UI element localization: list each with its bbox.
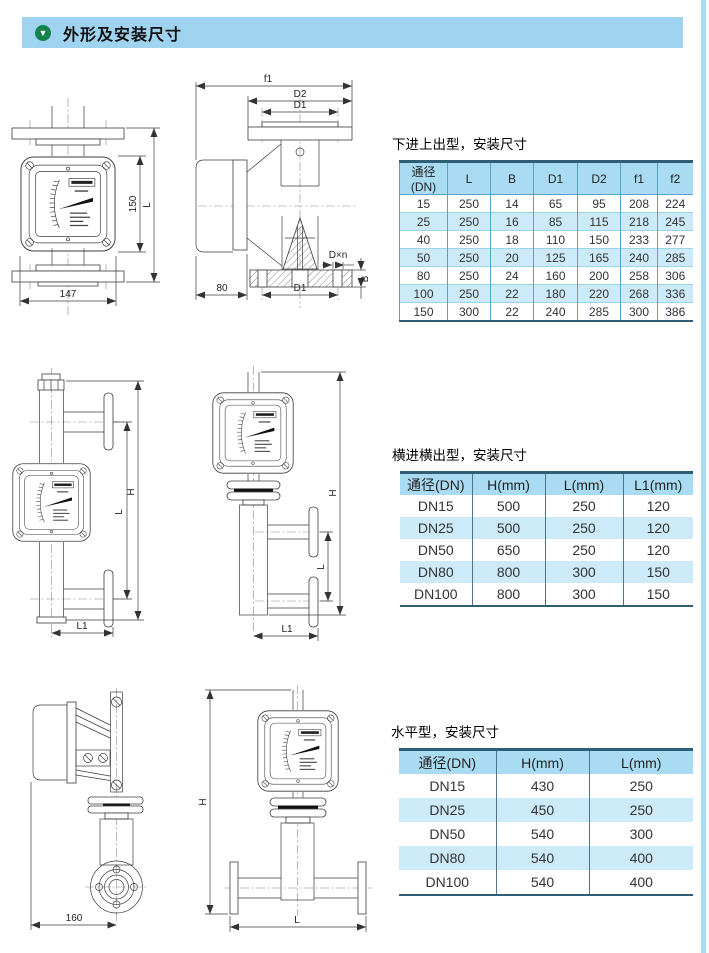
table-row: DN80800300150 [400,561,693,583]
table-cell: 540 [496,870,589,895]
table-header-row: 通径(DN)H(mm)L(mm) [399,750,693,775]
table-cell: 250 [448,231,491,249]
table-cell: 150 [578,231,621,249]
table-cell: 110 [534,231,578,249]
dim-label-150: 150 [128,195,139,212]
table-cell: 250 [448,249,491,267]
table-header-row: 通径(DN)LBD1D2f1f2 [400,162,693,195]
table-cell: 120 [623,539,693,561]
table-cell: 100 [400,285,448,303]
column-header: f1 [621,162,658,195]
table-cell: 300 [545,561,623,583]
table-row: DN25500250120 [400,517,693,539]
table-cell: 115 [578,213,621,231]
table-cell: 120 [623,517,693,539]
table-cell: 268 [621,285,658,303]
dim-label-L-left: L [114,509,125,515]
table-cell: DN80 [400,561,472,583]
section-header-bar: ▼ 外形及安装尺寸 [22,17,683,48]
column-header: D2 [578,162,621,195]
table-cell: 50 [400,249,448,267]
column-header: 通径(DN) [400,162,448,195]
table-bottom-in-top-out: 通径(DN)LBD1D2f1f2152501465952082242525016… [399,160,693,322]
table-row: 15030022240285300386 [400,303,693,322]
table-cell: 95 [578,195,621,213]
page-title: 外形及安装尺寸 [63,21,182,45]
column-header: f2 [658,162,693,195]
table-cell: 450 [496,798,589,822]
front-view: 150 L 147 [12,98,160,315]
page-edge-strip [701,0,706,953]
horizontal-type-right-view: H L L1 [213,366,346,641]
column-header: 通径(DN) [399,750,496,775]
table-cell: DN50 [399,822,496,846]
table-row: DN50540300 [399,822,693,846]
table-row: DN15430250 [399,774,693,798]
table1-title: 下进上出型，安装尺寸 [392,133,693,153]
column-header: L(mm) [545,473,623,496]
table-row: DN25450250 [399,798,693,822]
table-cell: 258 [621,267,658,285]
table-block-level-type: 水平型，安装尺寸 通径(DN)H(mm)L(mm)DN15430250DN254… [391,721,693,896]
table-cell: 245 [658,213,693,231]
table-cell: 150 [623,561,693,583]
dim-label-D1-top: D1 [294,100,307,111]
dim-label-160: 160 [66,913,83,924]
column-header: 通径(DN) [400,473,472,496]
table-cell: 540 [496,822,589,846]
table-cell: 300 [545,583,623,606]
table-cell: 250 [589,798,693,822]
table-cell: 80 [400,267,448,285]
table-cell: 160 [534,267,578,285]
table-cell: 208 [621,195,658,213]
table-cell: 200 [578,267,621,285]
table-cell: DN15 [400,495,472,517]
table-row: 5025020125165240285 [400,249,693,267]
table-row: DN15500250120 [400,495,693,517]
dim-label-B: B [360,275,371,282]
table-cell: 650 [472,539,545,561]
table-cell: DN25 [399,798,496,822]
dim-label-D1-bottom: D1 [294,283,307,294]
table3-title: 水平型，安装尺寸 [391,721,693,741]
dim-label-L1-left: L1 [76,621,88,632]
dim-label-L: L [142,202,153,208]
table-cell: 240 [534,303,578,322]
table-block-horizontal-in-out: 横进横出型，安装尺寸 通径(DN)H(mm)L(mm)L1(mm)DN15500… [392,444,693,607]
table-cell: DN25 [400,517,472,539]
table-cell: 14 [491,195,534,213]
table-cell: 20 [491,249,534,267]
column-header: H(mm) [472,473,545,496]
drawing-bottom-in-top-out: 150 L 147 f1 D2 D1 [0,68,395,320]
dim-label-147: 147 [60,289,77,300]
table-cell: 250 [448,213,491,231]
table-cell: 224 [658,195,693,213]
table-cell: 800 [472,583,545,606]
table-cell: 250 [545,517,623,539]
table-cell: 336 [658,285,693,303]
table-cell: 300 [448,303,491,322]
table-cell: 165 [578,249,621,267]
table-cell: 65 [534,195,578,213]
table-horizontal-in-out: 通径(DN)H(mm)L(mm)L1(mm)DN15500250120DN255… [400,471,693,607]
table-cell: 25 [400,213,448,231]
table-cell: 240 [621,249,658,267]
table-cell: 85 [534,213,578,231]
table-row: DN100800300150 [400,583,693,606]
table-cell: 500 [472,495,545,517]
table-cell: 125 [534,249,578,267]
table-cell: 250 [448,285,491,303]
dim-label-L1-right: L1 [281,624,293,635]
table-cell: 220 [578,285,621,303]
horizontal-type-left-view: H L L1 [13,368,144,638]
table-cell: 218 [621,213,658,231]
table-cell: 150 [623,583,693,606]
dim-label-L-front: L [294,915,300,926]
table-cell: DN100 [400,583,472,606]
table-row: 4025018110150233277 [400,231,693,249]
dim-label-80: 80 [216,283,228,294]
drawing-horizontal-level-type: 160 H [0,680,395,953]
table-cell: 22 [491,285,534,303]
table-row: DN100540400 [399,870,693,895]
column-header: B [491,162,534,195]
table-cell: 285 [578,303,621,322]
table-cell: 22 [491,303,534,322]
down-triangle-icon: ▼ [35,25,51,41]
table-cell: 250 [589,774,693,798]
dim-label-H-right: H [328,489,339,496]
table-cell: 285 [658,249,693,267]
table-cell: 250 [545,495,623,517]
column-header: H(mm) [496,750,589,775]
table-row: 8025024160200258306 [400,267,693,285]
column-header: D1 [534,162,578,195]
dim-label-L-right: L [316,564,327,570]
table-cell: 800 [472,561,545,583]
table-cell: 500 [472,517,545,539]
level-type-front-view: H L [198,685,372,932]
table-cell: 386 [658,303,693,322]
table-cell: DN15 [399,774,496,798]
table-cell: 24 [491,267,534,285]
dim-label-Dxn: D×n [329,250,348,261]
table-cell: 250 [545,539,623,561]
table-cell: 540 [496,846,589,870]
table-cell: DN100 [399,870,496,895]
side-section-view: f1 D2 D1 [196,74,371,308]
table-row: 252501685115218245 [400,213,693,231]
table-cell: DN50 [400,539,472,561]
table-row: DN50650250120 [400,539,693,561]
dim-label-H-front: H [198,798,209,805]
table-level-type: 通径(DN)H(mm)L(mm)DN15430250DN25450250DN50… [399,748,693,896]
table-cell: 15 [400,195,448,213]
table-cell: 300 [589,822,693,846]
table-cell: 430 [496,774,589,798]
page: ▼ 外形及安装尺寸 [0,0,709,953]
table-cell: 400 [589,870,693,895]
column-header: L(mm) [589,750,693,775]
drawing-horizontal-in-out: H L L1 [0,360,395,652]
table-cell: 233 [621,231,658,249]
table-row: 10025022180220268336 [400,285,693,303]
table-cell: 180 [534,285,578,303]
table-cell: 400 [589,846,693,870]
table-cell: 306 [658,267,693,285]
table-cell: 16 [491,213,534,231]
table-cell: 277 [658,231,693,249]
table-cell: 150 [400,303,448,322]
table-block-bottom-in-top-out: 下进上出型，安装尺寸 通径(DN)LBD1D2f1f21525014659520… [392,133,693,322]
table-cell: 40 [400,231,448,249]
table-cell: 250 [448,267,491,285]
table-row: DN80540400 [399,846,693,870]
dim-label-H-left: H [126,488,137,495]
column-header: L1(mm) [623,473,693,496]
dim-label-f1: f1 [264,74,273,85]
column-header: L [448,162,491,195]
table-cell: 250 [448,195,491,213]
dim-label-D2: D2 [294,89,307,100]
table-header-row: 通径(DN)H(mm)L(mm)L1(mm) [400,473,693,496]
table-row: 15250146595208224 [400,195,693,213]
table-cell: 300 [621,303,658,322]
table-cell: DN80 [399,846,496,870]
table-cell: 18 [491,231,534,249]
table2-title: 横进横出型，安装尺寸 [392,444,693,464]
table-cell: 120 [623,495,693,517]
level-type-side-view: 160 [31,688,148,930]
